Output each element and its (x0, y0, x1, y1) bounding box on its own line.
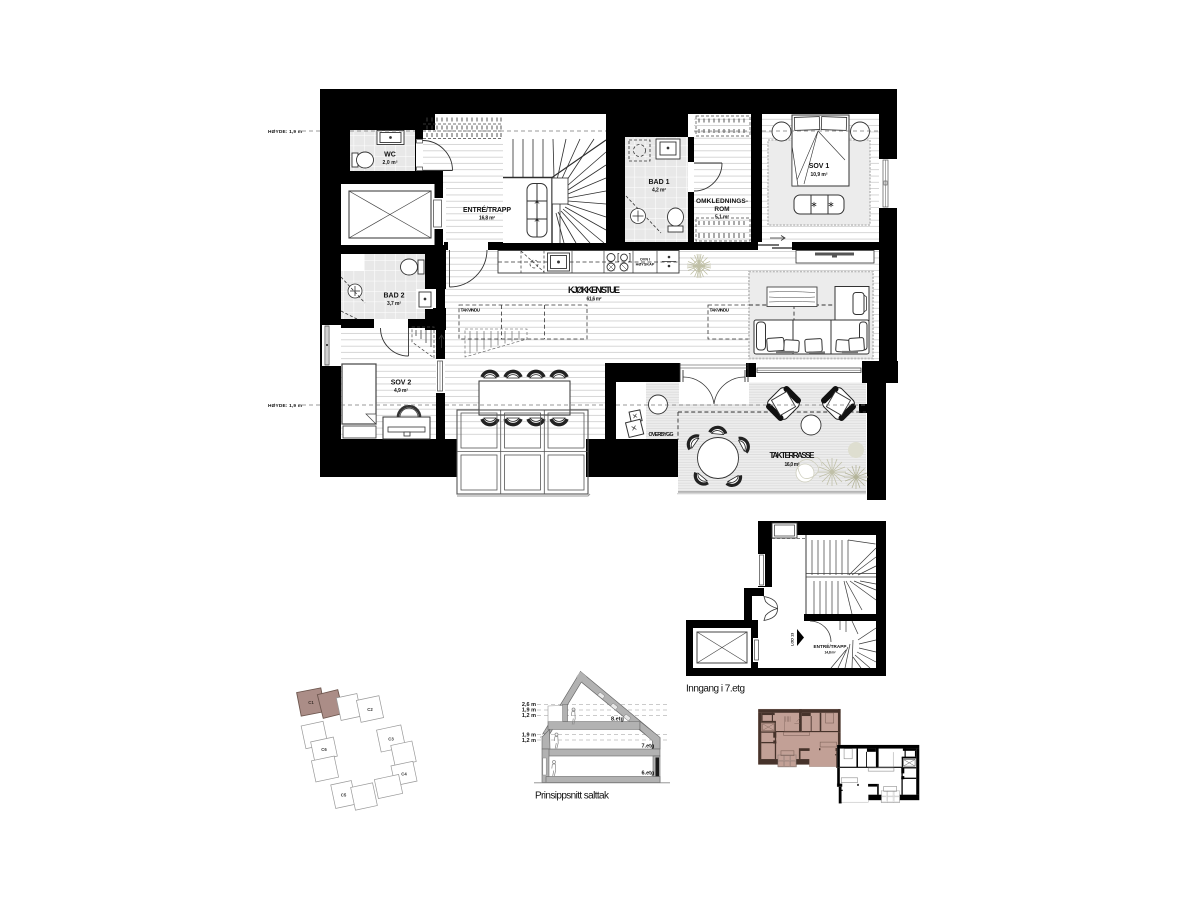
svg-text:C1: C1 (308, 700, 314, 705)
svg-text:C3: C3 (388, 737, 394, 742)
svg-text:Prinsippsnitt salttak: Prinsippsnitt salttak (535, 791, 610, 802)
svg-text:TAKTERRASSE: TAKTERRASSE (770, 451, 816, 460)
svg-text:8.etg: 8.etg (611, 717, 624, 723)
svg-text:TAKVINDU: TAKVINDU (710, 308, 730, 313)
svg-text:1,2 m: 1,2 m (522, 713, 536, 719)
svg-text:HØYSKAP: HØYSKAP (636, 263, 655, 267)
svg-text:ENTRÉ/TRAPP: ENTRÉ/TRAPP (463, 205, 511, 214)
svg-text:C5: C5 (341, 793, 347, 798)
svg-text:SOV 2: SOV 2 (391, 380, 412, 387)
svg-text:4,9 m²: 4,9 m² (394, 388, 408, 394)
svg-text:KJØKKEN/STUE: KJØKKEN/STUE (568, 285, 620, 295)
svg-text:4,2 m²: 4,2 m² (652, 188, 666, 194)
svg-text:16,8 m²: 16,8 m² (479, 216, 495, 222)
svg-text:10,9 m²: 10,9 m² (811, 172, 828, 178)
svg-text:TAKVINDU: TAKVINDU (461, 308, 481, 313)
svg-text:OVN I: OVN I (640, 258, 650, 262)
svg-text:16,0 m²: 16,0 m² (785, 462, 800, 468)
svg-text:LOD 13: LOD 13 (791, 633, 795, 646)
svg-text:OMKLEDNINGS-: OMKLEDNINGS- (696, 198, 748, 205)
svg-text:14,8 m²: 14,8 m² (825, 651, 837, 655)
svg-text:BAD 2: BAD 2 (383, 293, 404, 300)
svg-text:6.etg: 6.etg (642, 771, 655, 777)
svg-text:HØYDE: 1,9 m: HØYDE: 1,9 m (268, 403, 302, 409)
svg-text:OVERBYGG: OVERBYGG (649, 432, 674, 438)
svg-text:C2: C2 (367, 707, 373, 712)
svg-text:WC: WC (384, 152, 396, 159)
svg-text:7.etg: 7.etg (642, 744, 655, 750)
svg-text:61,6 m²: 61,6 m² (587, 297, 602, 303)
svg-text:3,7 m²: 3,7 m² (387, 301, 401, 307)
svg-text:2,0 m²: 2,0 m² (383, 160, 398, 166)
svg-text:ROM: ROM (714, 206, 729, 213)
svg-text:C4: C4 (401, 772, 407, 777)
svg-text:C6: C6 (321, 747, 327, 752)
svg-text:ENTRÉ/TRAPP: ENTRÉ/TRAPP (814, 642, 847, 649)
svg-text:HØYDE: 1,9 m: HØYDE: 1,9 m (268, 129, 302, 135)
svg-text:SOV 1: SOV 1 (809, 163, 830, 170)
svg-text:5,1 m²: 5,1 m² (715, 215, 729, 221)
svg-text:BAD 1: BAD 1 (648, 179, 669, 186)
svg-text:Inngang i 7.etg: Inngang i 7.etg (686, 684, 745, 695)
svg-text:1,2 m: 1,2 m (522, 738, 536, 744)
